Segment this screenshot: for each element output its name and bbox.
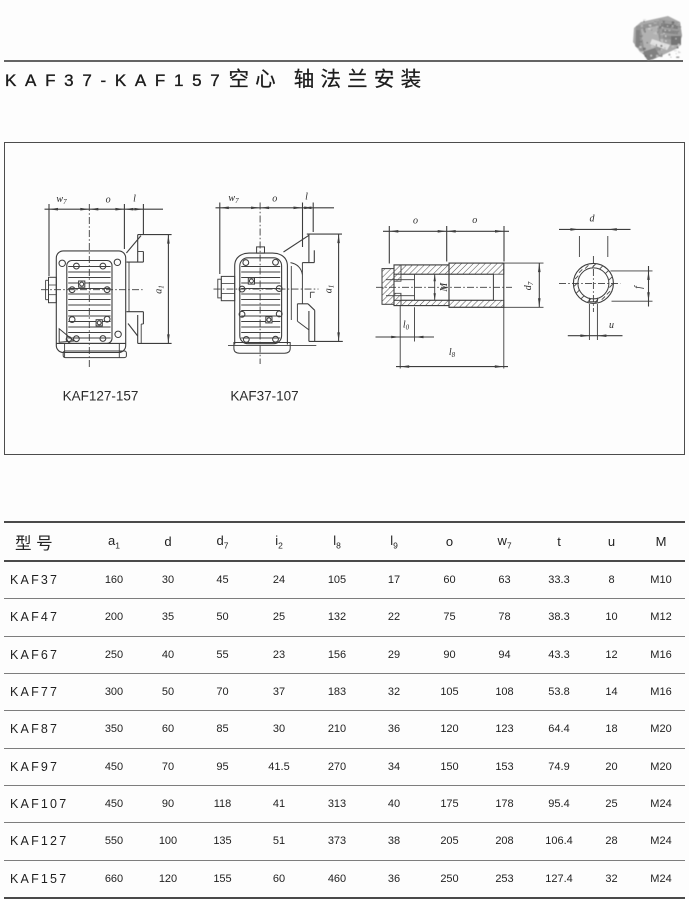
svg-text:o: o xyxy=(106,195,111,206)
svg-text:a1: a1 xyxy=(154,285,166,294)
svg-text:o: o xyxy=(272,194,277,205)
svg-text:d: d xyxy=(590,214,596,225)
svg-text:l0: l0 xyxy=(403,320,410,332)
svg-text:w7: w7 xyxy=(228,193,239,205)
svg-text:w7: w7 xyxy=(56,194,67,206)
svg-text:M: M xyxy=(439,282,450,293)
svg-text:KAF37-107: KAF37-107 xyxy=(230,389,298,404)
svg-text:a1: a1 xyxy=(324,285,336,294)
svg-text:d7: d7 xyxy=(523,281,535,290)
svg-text:f: f xyxy=(634,285,645,289)
svg-text:l: l xyxy=(305,192,308,203)
svg-text:KAF127-157: KAF127-157 xyxy=(63,389,139,404)
svg-text:l8: l8 xyxy=(449,347,456,359)
svg-text:l: l xyxy=(133,194,136,205)
svg-text:o: o xyxy=(472,215,477,226)
svg-text:o: o xyxy=(413,216,418,227)
svg-text:u: u xyxy=(609,320,614,331)
